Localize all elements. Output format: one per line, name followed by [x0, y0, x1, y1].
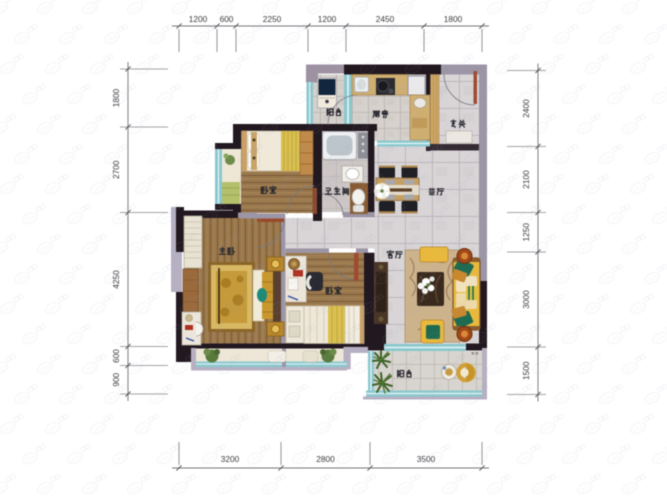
svg-text:1200: 1200 — [318, 14, 337, 24]
svg-text:900: 900 — [111, 372, 121, 386]
svg-text:2800: 2800 — [316, 454, 335, 464]
svg-text:600: 600 — [111, 349, 121, 363]
svg-text:3000: 3000 — [521, 290, 531, 309]
svg-text:2450: 2450 — [376, 14, 395, 24]
svg-text:1800: 1800 — [444, 14, 463, 24]
svg-text:2250: 2250 — [263, 14, 282, 24]
svg-text:2100: 2100 — [521, 170, 531, 189]
svg-text:1250: 1250 — [521, 223, 531, 242]
svg-text:600: 600 — [220, 14, 234, 24]
svg-text:1200: 1200 — [189, 14, 208, 24]
svg-text:3200: 3200 — [221, 454, 240, 464]
svg-text:1500: 1500 — [521, 361, 531, 380]
